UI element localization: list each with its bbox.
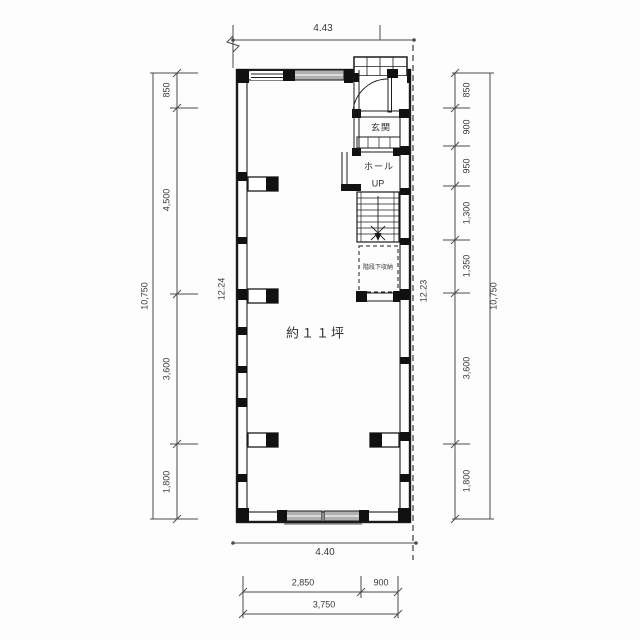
room-label-hall: ホール xyxy=(364,163,394,172)
genkan-step xyxy=(357,137,400,148)
dim-right-overall: 10,750 xyxy=(490,282,499,310)
dim-left-segment: 3,600 xyxy=(163,358,172,381)
dim-right-segment: 950 xyxy=(463,158,472,173)
room-label-storage: 階段下収納 xyxy=(363,265,393,271)
dim-top-width: 4.43 xyxy=(313,24,332,34)
porch-tile-grid xyxy=(354,57,407,76)
dim-left-inner-height: 12.24 xyxy=(218,278,227,301)
partition-stub xyxy=(248,289,278,303)
floor-plan-drawing xyxy=(0,0,640,640)
partition-stub xyxy=(248,433,278,447)
floor-plan-canvas: 4.43 850 4,500 3,600 1,800 10,750 12.24 … xyxy=(0,0,640,640)
storage-bottom-wall xyxy=(356,291,400,302)
dim-bottom-segment: 2,850 xyxy=(292,579,315,588)
dim-right-segment: 1,350 xyxy=(463,255,472,278)
dim-left-segment: 4,500 xyxy=(163,189,172,212)
dim-right-segment: 1,800 xyxy=(463,470,472,493)
stairs xyxy=(357,192,399,242)
floor-area-label: 約１１坪 xyxy=(286,327,346,340)
left-dimension-chain xyxy=(150,73,198,519)
dimension-lines xyxy=(150,25,494,618)
tick-marks xyxy=(173,69,459,618)
room-label-genkan: 玄関 xyxy=(371,124,391,133)
dim-right-inner-height: 12.23 xyxy=(420,280,429,303)
dim-left-segment: 850 xyxy=(163,82,172,97)
dim-left-overall: 10,750 xyxy=(141,282,150,310)
dim-left-segment: 1,800 xyxy=(163,471,172,494)
dim-right-segment: 900 xyxy=(463,119,472,134)
room-label-up: UP xyxy=(372,180,385,189)
dim-bottom-width: 4.40 xyxy=(315,548,334,558)
partition-stub xyxy=(248,177,278,191)
dim-right-segment: 3,600 xyxy=(463,357,472,380)
dim-bottom-segment: 900 xyxy=(373,579,388,588)
partition-stub xyxy=(370,433,399,447)
dim-right-segment: 1,300 xyxy=(463,202,472,225)
window-top-left xyxy=(251,71,283,80)
right-dimension-chain xyxy=(443,73,494,519)
dim-right-segment: 850 xyxy=(463,82,472,97)
dim-bottom-overall: 3,750 xyxy=(313,601,336,610)
